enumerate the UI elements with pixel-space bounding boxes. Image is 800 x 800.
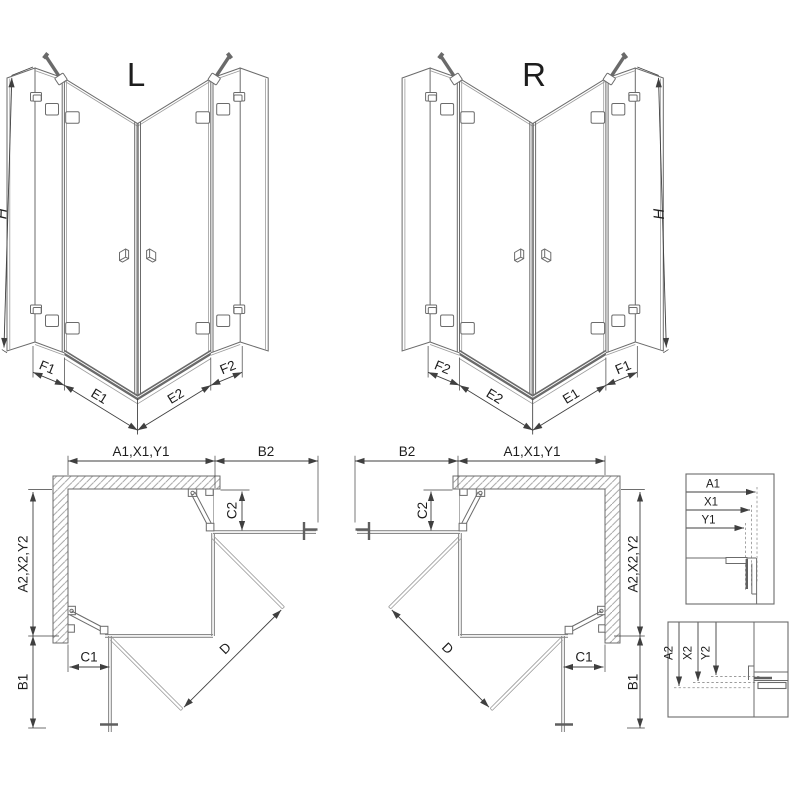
dim-label-height-left: H bbox=[0, 208, 11, 220]
detail-label-y1: Y1 bbox=[701, 515, 715, 527]
technical-drawing-page: L H F1 E1 E2 F2 R H F2 E2 E1 F1 A1,X1,Y1… bbox=[0, 0, 800, 800]
dim-label-width-planL: A1,X1,Y1 bbox=[112, 444, 169, 459]
dim-label-depth-planR: A2,X2,Y2 bbox=[626, 535, 641, 592]
dim-label-c1-planR: C1 bbox=[575, 650, 592, 665]
detail-label-a2: A2 bbox=[664, 646, 676, 660]
dim-label-depth-planL: A2,X2,Y2 bbox=[16, 535, 31, 592]
shower-enclosure-drawing: L H F1 E1 E2 F2 R H F2 E2 E1 F1 A1,X1,Y1… bbox=[0, 0, 800, 800]
variant-label-left: L bbox=[127, 56, 145, 93]
dim-label-b2-planR: B2 bbox=[399, 444, 416, 459]
variant-label-right: R bbox=[522, 56, 546, 93]
detail-label-x2: X2 bbox=[683, 646, 695, 660]
detail-label-x1: X1 bbox=[704, 497, 718, 509]
detail-label-a1: A1 bbox=[706, 479, 720, 491]
dim-label-width-planR: A1,X1,Y1 bbox=[503, 444, 560, 459]
dim-label-b1-planR: B1 bbox=[626, 674, 641, 691]
dim-label-c2-planR: C2 bbox=[415, 502, 430, 519]
dim-label-b2-planL: B2 bbox=[258, 444, 275, 459]
detail-label-y2: Y2 bbox=[701, 646, 713, 660]
dim-label-b1-planL: B1 bbox=[16, 674, 31, 691]
dim-label-height-right: H bbox=[651, 208, 668, 220]
dim-label-c2-planL: C2 bbox=[225, 502, 240, 519]
page-background bbox=[0, 0, 800, 800]
dim-label-c1-planL: C1 bbox=[80, 650, 97, 665]
